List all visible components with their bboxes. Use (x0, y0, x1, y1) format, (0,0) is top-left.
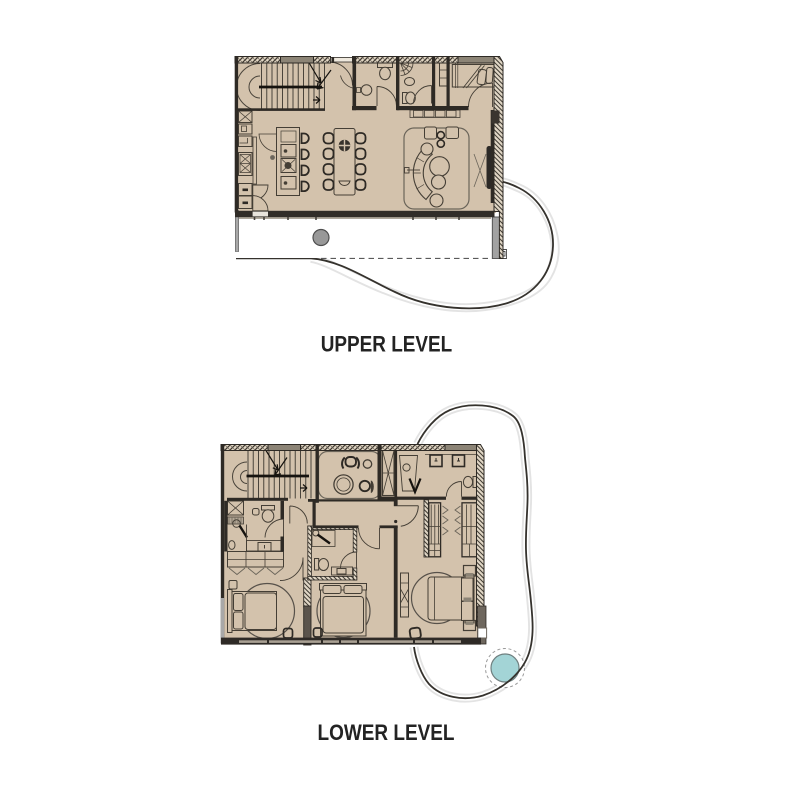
svg-text:LOWER LEVEL: LOWER LEVEL (318, 720, 455, 745)
svg-text:UPPER LEVEL: UPPER LEVEL (321, 332, 453, 357)
